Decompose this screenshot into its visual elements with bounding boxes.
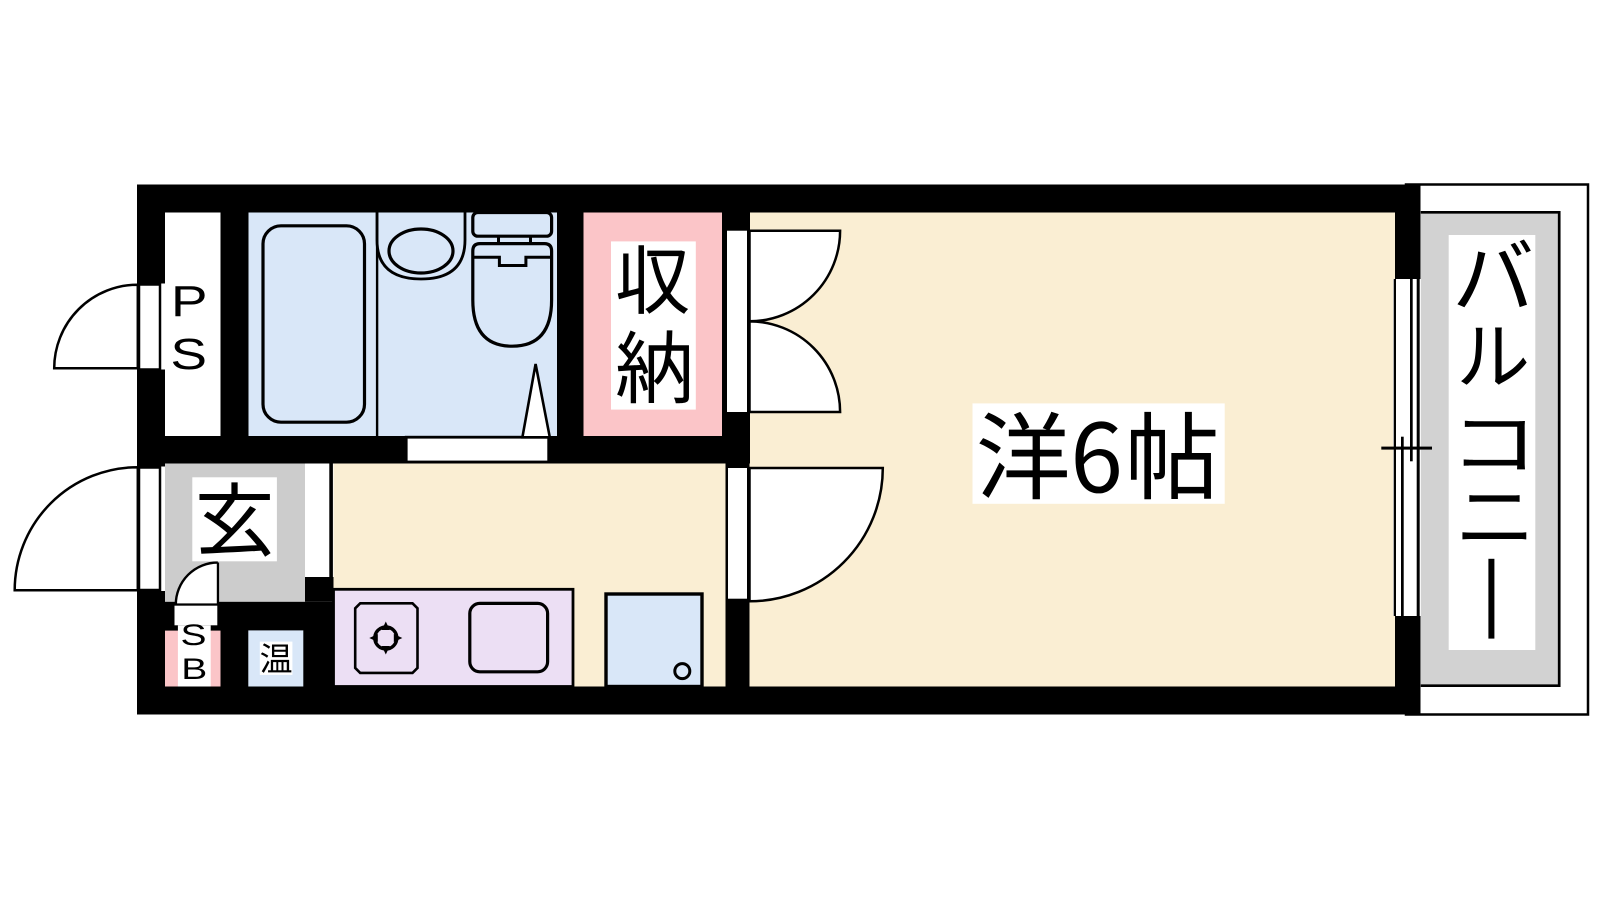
svg-text:P: P: [171, 276, 208, 325]
svg-text:S: S: [180, 619, 206, 652]
svg-text:B: B: [181, 653, 207, 686]
svg-text:S: S: [170, 329, 207, 378]
